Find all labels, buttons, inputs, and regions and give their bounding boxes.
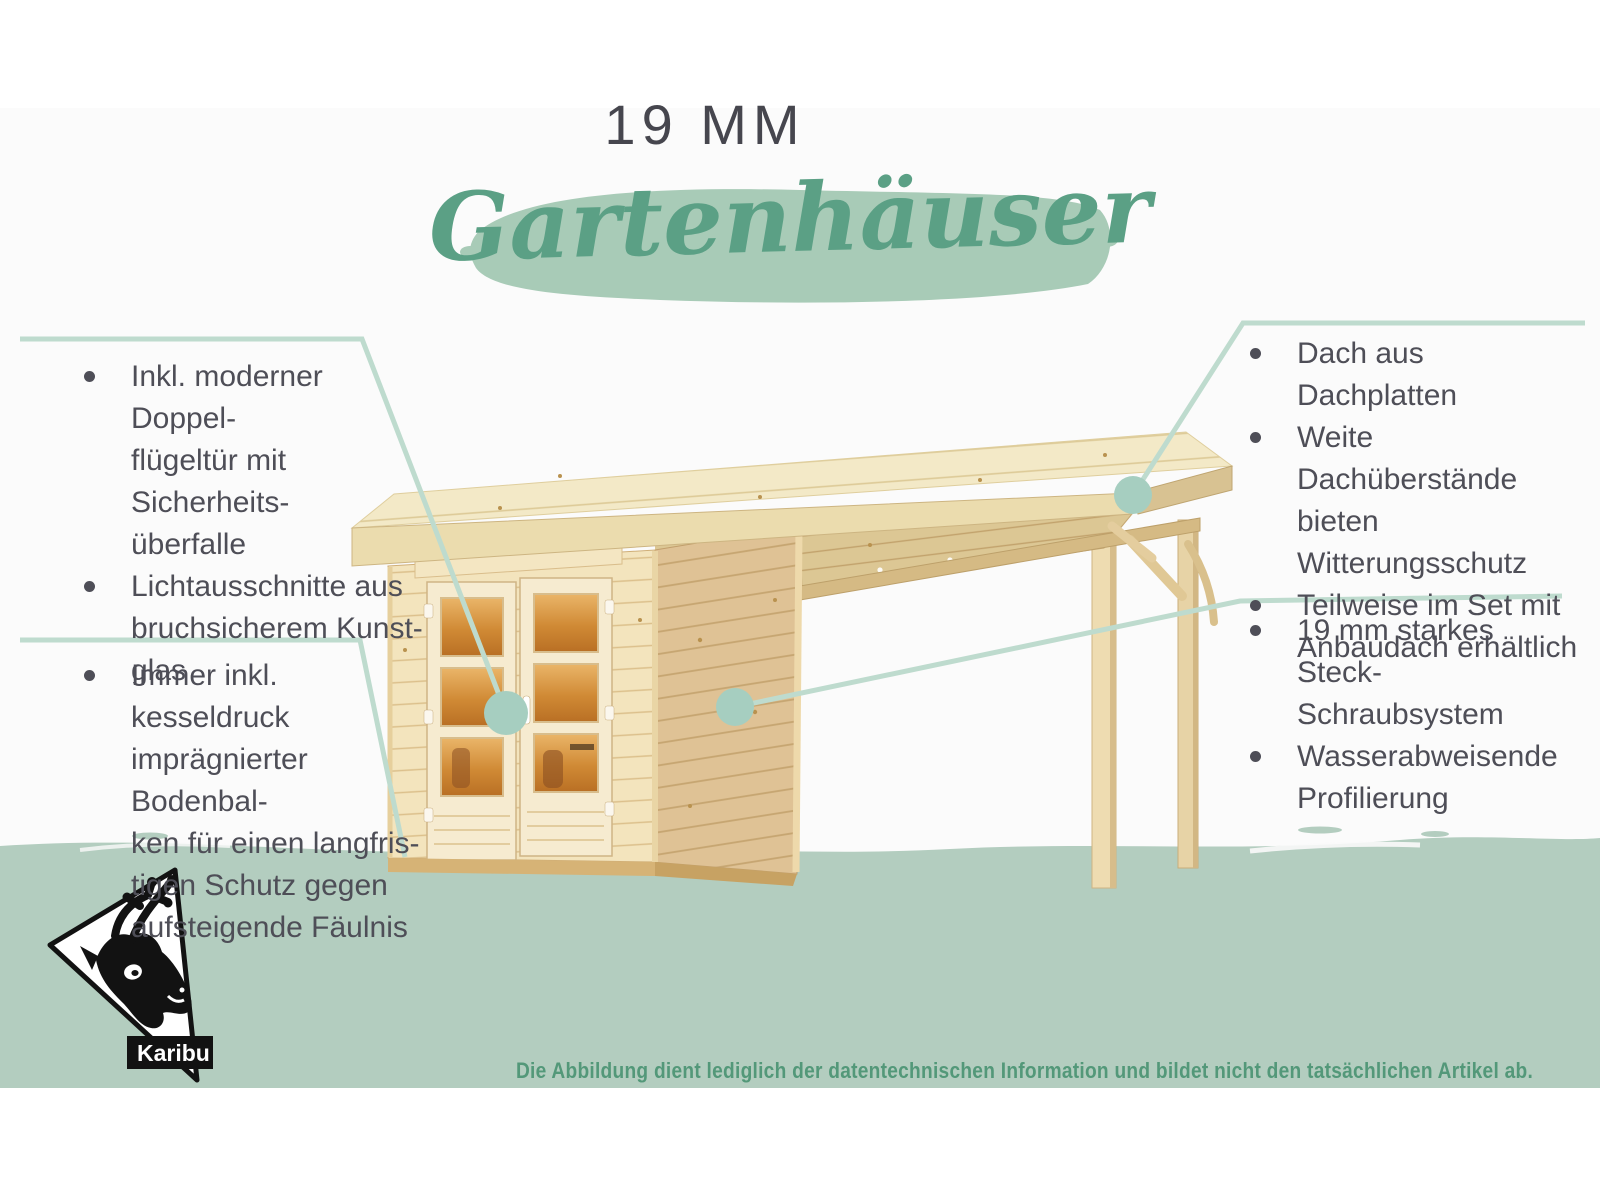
- size-kicker: 19 MM: [405, 92, 1005, 157]
- feature-text: Wasserabweisende Profilierung: [1297, 736, 1558, 820]
- infographic-page: Karibu 19 MM Gartenhäuser Inkl. moderner…: [0, 0, 1600, 1200]
- list-item: Weite Dachüberstände bieten Witterungssc…: [1250, 417, 1580, 585]
- bullet-dot: [1250, 751, 1261, 762]
- bullet-dot: [1250, 348, 1261, 359]
- list-item: Wasserabweisende Profilierung: [1250, 736, 1580, 820]
- feature-list-left-bottom: Immer inkl. kesseldruck imprägnierter Bo…: [84, 655, 434, 949]
- bullet-dot: [1250, 432, 1261, 443]
- bullet-dot: [84, 581, 95, 592]
- feature-text: Weite Dachüberstände bieten Witterungssc…: [1297, 417, 1580, 585]
- page-title: Gartenhäuser: [399, 158, 1181, 282]
- bullet-dot: [1250, 625, 1261, 636]
- list-item: Inkl. moderner Doppel- flügeltür mit Sic…: [84, 356, 434, 566]
- feature-text: Immer inkl. kesseldruck imprägnierter Bo…: [131, 655, 434, 949]
- feature-text: Dach aus Dachplatten: [1297, 333, 1580, 417]
- bullet-dot: [84, 371, 95, 382]
- feature-list-right-bottom: 19 mm starkes Steck- Schraubsystem Wasse…: [1250, 610, 1580, 820]
- feature-text: 19 mm starkes Steck- Schraubsystem: [1297, 610, 1580, 736]
- text-layer: 19 MM Gartenhäuser Inkl. moderner Doppel…: [0, 0, 1600, 1200]
- feature-list-left-top: Inkl. moderner Doppel- flügeltür mit Sic…: [84, 356, 434, 692]
- feature-text: Inkl. moderner Doppel- flügeltür mit Sic…: [131, 356, 434, 566]
- bullet-dot: [84, 670, 95, 681]
- list-item: 19 mm starkes Steck- Schraubsystem: [1250, 610, 1580, 736]
- list-item: Immer inkl. kesseldruck imprägnierter Bo…: [84, 655, 434, 949]
- list-item: Dach aus Dachplatten: [1250, 333, 1580, 417]
- disclaimer-text: Die Abbildung dient lediglich der datent…: [516, 1058, 1533, 1084]
